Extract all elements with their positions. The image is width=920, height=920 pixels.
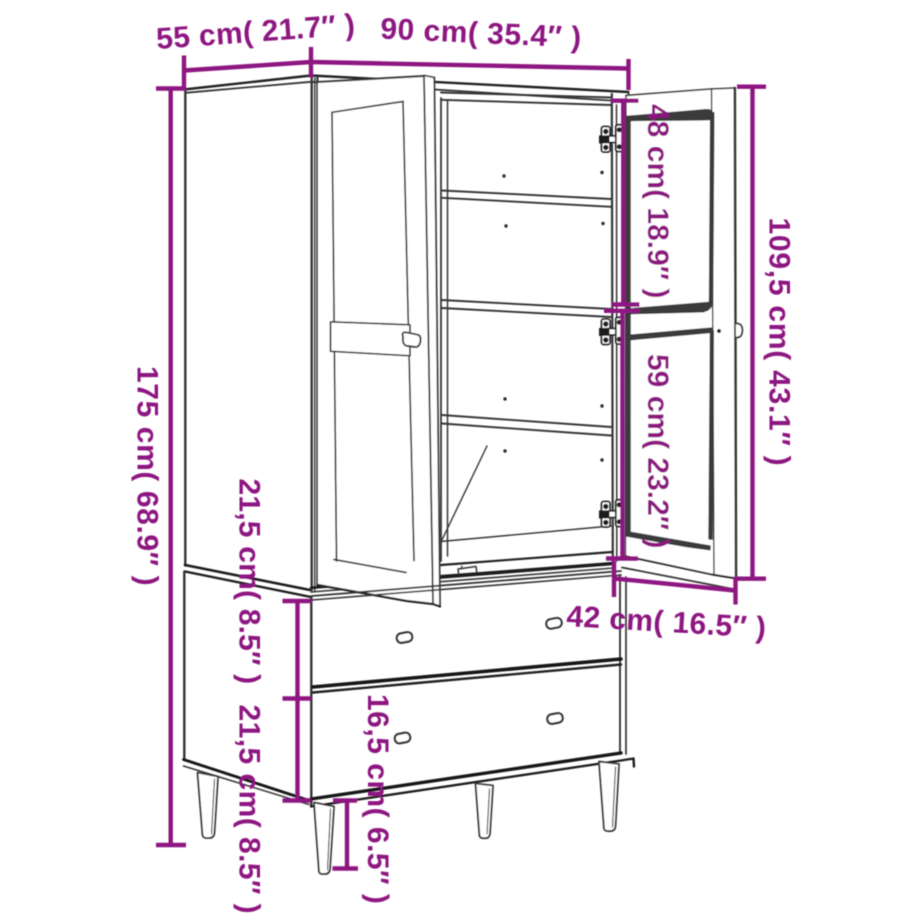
svg-text:21,5 cm( 8.5″ ): 21,5 cm( 8.5″ ) bbox=[233, 705, 266, 915]
svg-text:109,5 cm( 43.1″ ): 109,5 cm( 43.1″ ) bbox=[763, 218, 796, 467]
svg-text:21,5 cm( 8.5″ ): 21,5 cm( 8.5″ ) bbox=[233, 479, 266, 685]
svg-text:175 cm( 68.9″ ): 175 cm( 68.9″ ) bbox=[131, 366, 164, 586]
svg-text:16,5 cm( 6.5″ ): 16,5 cm( 6.5″ ) bbox=[361, 694, 394, 904]
svg-text:48 cm( 18.9″ ): 48 cm( 18.9″ ) bbox=[641, 104, 674, 298]
svg-text:59 cm( 23.2″ ): 59 cm( 23.2″ ) bbox=[641, 354, 674, 548]
